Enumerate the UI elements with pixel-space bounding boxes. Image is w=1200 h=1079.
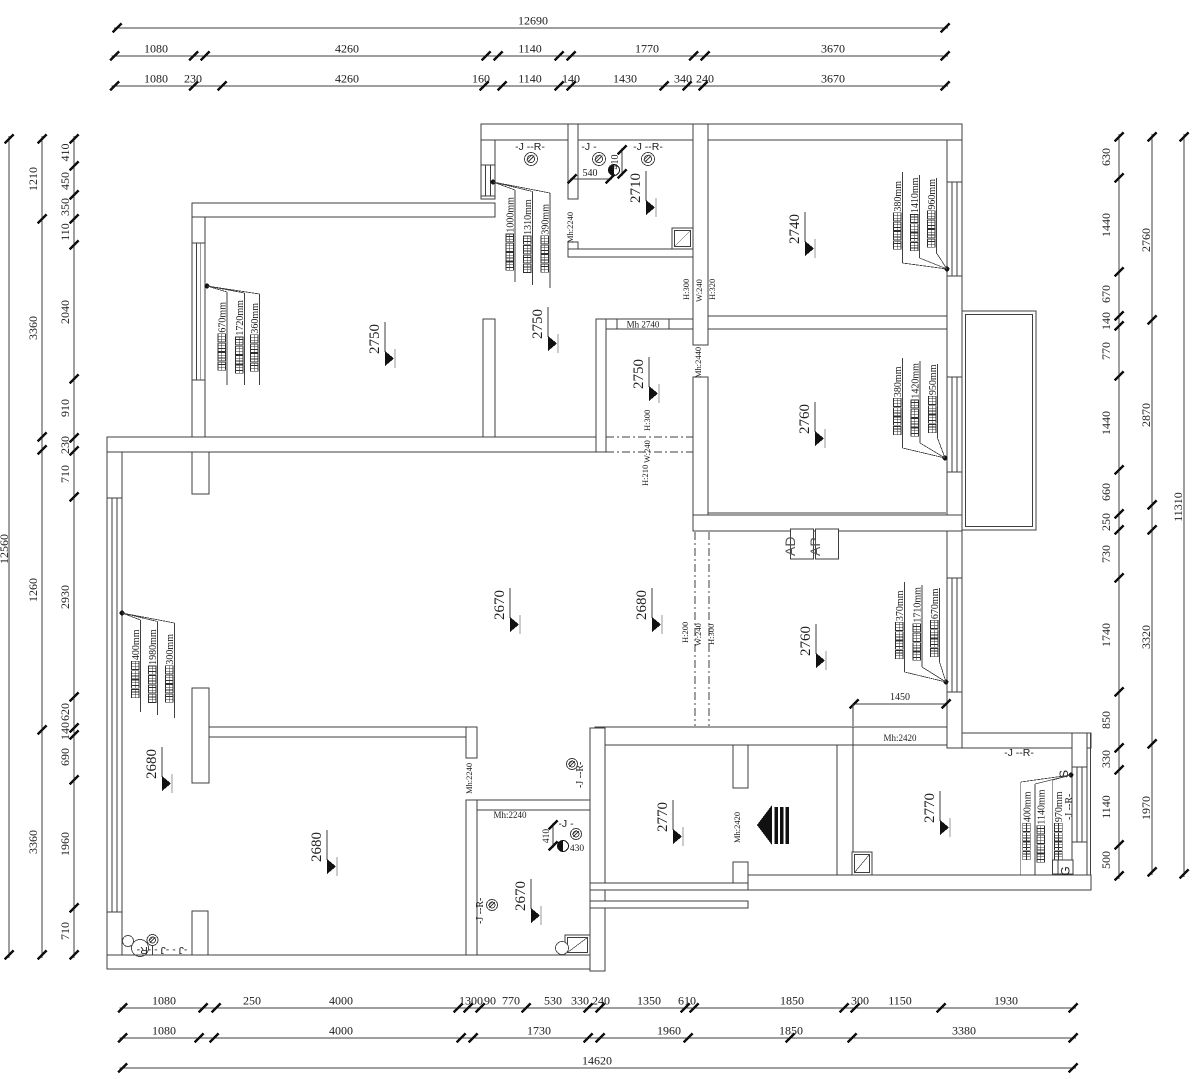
svg-text:390mm: 390mm xyxy=(541,204,552,235)
svg-text:140: 140 xyxy=(562,72,580,86)
svg-text:3320: 3320 xyxy=(1139,625,1153,649)
svg-text:Mh:2440: Mh:2440 xyxy=(693,347,703,378)
svg-text:710: 710 xyxy=(58,465,72,483)
svg-text:500: 500 xyxy=(1099,851,1113,869)
svg-text:960mm: 960mm xyxy=(927,179,938,210)
svg-text:2040: 2040 xyxy=(58,300,72,324)
svg-text:530: 530 xyxy=(544,994,562,1008)
svg-text:350: 350 xyxy=(58,198,72,216)
svg-text:2760: 2760 xyxy=(1139,228,1153,252)
svg-text:300: 300 xyxy=(851,994,869,1008)
svg-text:1850: 1850 xyxy=(779,1024,803,1038)
svg-text:W:240: W:240 xyxy=(694,279,704,302)
svg-text:-J --R-: -J --R- xyxy=(515,141,545,153)
svg-text:230: 230 xyxy=(184,72,202,86)
svg-text:670: 670 xyxy=(1099,285,1113,303)
svg-text:690: 690 xyxy=(58,748,72,766)
svg-text:H:320: H:320 xyxy=(707,279,717,300)
svg-text:1140: 1140 xyxy=(518,72,542,86)
svg-text:540: 540 xyxy=(583,168,598,179)
svg-text:410: 410 xyxy=(610,155,621,170)
svg-text:4260: 4260 xyxy=(335,42,359,56)
svg-text:1740: 1740 xyxy=(1099,623,1113,647)
svg-text:Mh 2740: Mh 2740 xyxy=(627,320,660,330)
svg-text:3670: 3670 xyxy=(821,72,845,86)
svg-text:-J --R-: -J --R- xyxy=(1004,747,1034,759)
svg-text:1000mm: 1000mm xyxy=(506,197,517,233)
svg-text:240: 240 xyxy=(592,994,610,1008)
svg-text:970mm: 970mm xyxy=(1054,791,1065,822)
svg-text:300mm: 300mm xyxy=(165,634,176,665)
svg-text:W:240: W:240 xyxy=(642,440,652,463)
svg-text:1420mm: 1420mm xyxy=(911,363,922,399)
svg-text:1080: 1080 xyxy=(144,72,168,86)
svg-text:380mm: 380mm xyxy=(893,366,904,397)
svg-text:610: 610 xyxy=(678,994,696,1008)
svg-text:H:300: H:300 xyxy=(681,279,691,300)
svg-text:1430: 1430 xyxy=(613,72,637,86)
svg-text:1720mm: 1720mm xyxy=(235,300,246,336)
svg-text:H:300: H:300 xyxy=(642,410,652,431)
svg-text:12560: 12560 xyxy=(0,534,11,564)
svg-text:-J -: -J - xyxy=(558,818,574,830)
svg-text:2770: 2770 xyxy=(922,793,938,823)
svg-text:1310mm: 1310mm xyxy=(523,199,534,235)
svg-text:910: 910 xyxy=(58,399,72,417)
svg-text:1410mm: 1410mm xyxy=(910,177,921,213)
svg-text:2750: 2750 xyxy=(367,324,383,354)
svg-text:2710: 2710 xyxy=(628,173,644,203)
svg-text:AD: AD xyxy=(782,537,798,556)
svg-text:380mm: 380mm xyxy=(893,181,904,212)
svg-text:230: 230 xyxy=(58,436,72,454)
svg-text:-J -: -J - xyxy=(581,141,597,153)
svg-text:H:300: H:300 xyxy=(706,624,716,645)
svg-text:340: 340 xyxy=(674,72,692,86)
svg-text:Mh:2240: Mh:2240 xyxy=(464,763,474,794)
svg-text:450: 450 xyxy=(58,172,72,190)
svg-text:2930: 2930 xyxy=(58,585,72,609)
svg-text:1730: 1730 xyxy=(527,1024,551,1038)
svg-text:2740: 2740 xyxy=(787,214,803,244)
svg-text:1140mm: 1140mm xyxy=(1037,789,1048,824)
svg-text:1450: 1450 xyxy=(890,692,910,703)
svg-text:850: 850 xyxy=(1099,711,1113,729)
svg-text:430: 430 xyxy=(570,844,585,854)
svg-text:2870: 2870 xyxy=(1139,403,1153,427)
svg-text:3670: 3670 xyxy=(821,42,845,56)
svg-text:110: 110 xyxy=(58,223,72,241)
svg-text:2770: 2770 xyxy=(655,802,671,832)
svg-text:G: G xyxy=(1059,866,1073,875)
svg-text:4260: 4260 xyxy=(335,72,359,86)
svg-text:W:240: W:240 xyxy=(693,623,703,646)
svg-text:1930: 1930 xyxy=(994,994,1018,1008)
svg-text:1080: 1080 xyxy=(144,42,168,56)
svg-text:1080: 1080 xyxy=(152,1024,176,1038)
svg-text:330: 330 xyxy=(1099,750,1113,768)
svg-text:1710mm: 1710mm xyxy=(913,587,924,623)
svg-text:11310: 11310 xyxy=(1171,492,1185,522)
svg-text:90: 90 xyxy=(484,994,496,1008)
svg-text:12690: 12690 xyxy=(518,14,548,28)
svg-text:400mm: 400mm xyxy=(131,629,142,660)
svg-text:950mm: 950mm xyxy=(928,364,939,395)
svg-text:140: 140 xyxy=(58,722,72,740)
svg-text:1260: 1260 xyxy=(26,578,40,602)
svg-text:Mh:2240: Mh:2240 xyxy=(565,212,575,243)
svg-text:-J - -J - -R-: -J - -J - -R- xyxy=(136,944,187,956)
svg-text:4000: 4000 xyxy=(329,994,353,1008)
svg-text:4000: 4000 xyxy=(329,1024,353,1038)
svg-text:1140: 1140 xyxy=(1099,795,1113,819)
svg-text:2670: 2670 xyxy=(513,881,529,911)
svg-text:410: 410 xyxy=(58,144,72,162)
svg-text:1960: 1960 xyxy=(58,832,72,856)
svg-text:1980mm: 1980mm xyxy=(148,629,159,665)
svg-text:14620: 14620 xyxy=(582,1054,612,1068)
svg-text:620: 620 xyxy=(58,703,72,721)
svg-text:370mm: 370mm xyxy=(895,590,906,621)
svg-text:1140: 1140 xyxy=(518,42,542,56)
svg-text:Mh:2420: Mh:2420 xyxy=(732,812,742,843)
svg-text:3360: 3360 xyxy=(26,830,40,854)
svg-text:330: 330 xyxy=(571,994,589,1008)
svg-text:3360: 3360 xyxy=(26,316,40,340)
svg-text:AP: AP xyxy=(807,537,823,556)
svg-text:400mm: 400mm xyxy=(1022,791,1033,822)
svg-text:2760: 2760 xyxy=(798,626,814,656)
svg-text:1440: 1440 xyxy=(1099,213,1113,237)
svg-text:710: 710 xyxy=(58,922,72,940)
svg-text:1770: 1770 xyxy=(635,42,659,56)
svg-text:Mh:2420: Mh:2420 xyxy=(883,733,917,743)
svg-text:360mm: 360mm xyxy=(250,303,261,334)
svg-text:-J --R-: -J --R- xyxy=(475,898,486,924)
svg-text:140: 140 xyxy=(1099,312,1113,330)
svg-text:-J --R-: -J --R- xyxy=(575,762,586,788)
svg-text:2680: 2680 xyxy=(309,832,325,862)
svg-text:670mm: 670mm xyxy=(930,588,941,619)
svg-text:670mm: 670mm xyxy=(218,302,229,333)
svg-text:2750: 2750 xyxy=(631,359,647,389)
svg-text:660: 660 xyxy=(1099,483,1113,501)
svg-text:1970: 1970 xyxy=(1139,796,1153,820)
svg-text:2760: 2760 xyxy=(797,404,813,434)
svg-text:770: 770 xyxy=(1099,342,1113,360)
svg-text:250: 250 xyxy=(243,994,261,1008)
svg-text:2680: 2680 xyxy=(144,749,160,779)
svg-text:2680: 2680 xyxy=(634,590,650,620)
svg-text:2750: 2750 xyxy=(530,309,546,339)
svg-text:1440: 1440 xyxy=(1099,411,1113,435)
svg-text:H:200: H:200 xyxy=(680,622,690,643)
svg-text:-J --R-: -J --R- xyxy=(633,141,663,153)
svg-text:1850: 1850 xyxy=(780,994,804,1008)
svg-text:H:210: H:210 xyxy=(640,465,650,486)
svg-text:3380: 3380 xyxy=(952,1024,976,1038)
svg-text:240: 240 xyxy=(696,72,714,86)
svg-text:1960: 1960 xyxy=(657,1024,681,1038)
svg-text:1350: 1350 xyxy=(637,994,661,1008)
svg-text:1150: 1150 xyxy=(888,994,912,1008)
svg-text:410: 410 xyxy=(542,829,552,844)
svg-text:1080: 1080 xyxy=(152,994,176,1008)
svg-text:-J --R-: -J --R- xyxy=(1064,794,1075,820)
svg-text:630: 630 xyxy=(1099,148,1113,166)
svg-text:160: 160 xyxy=(472,72,490,86)
svg-text:2670: 2670 xyxy=(492,590,508,620)
svg-text:770: 770 xyxy=(502,994,520,1008)
svg-text:1210: 1210 xyxy=(26,167,40,191)
svg-text:Mh:2240: Mh:2240 xyxy=(493,810,527,820)
svg-text:250: 250 xyxy=(1099,513,1113,531)
svg-text:1300: 1300 xyxy=(459,994,483,1008)
svg-text:730: 730 xyxy=(1099,545,1113,563)
